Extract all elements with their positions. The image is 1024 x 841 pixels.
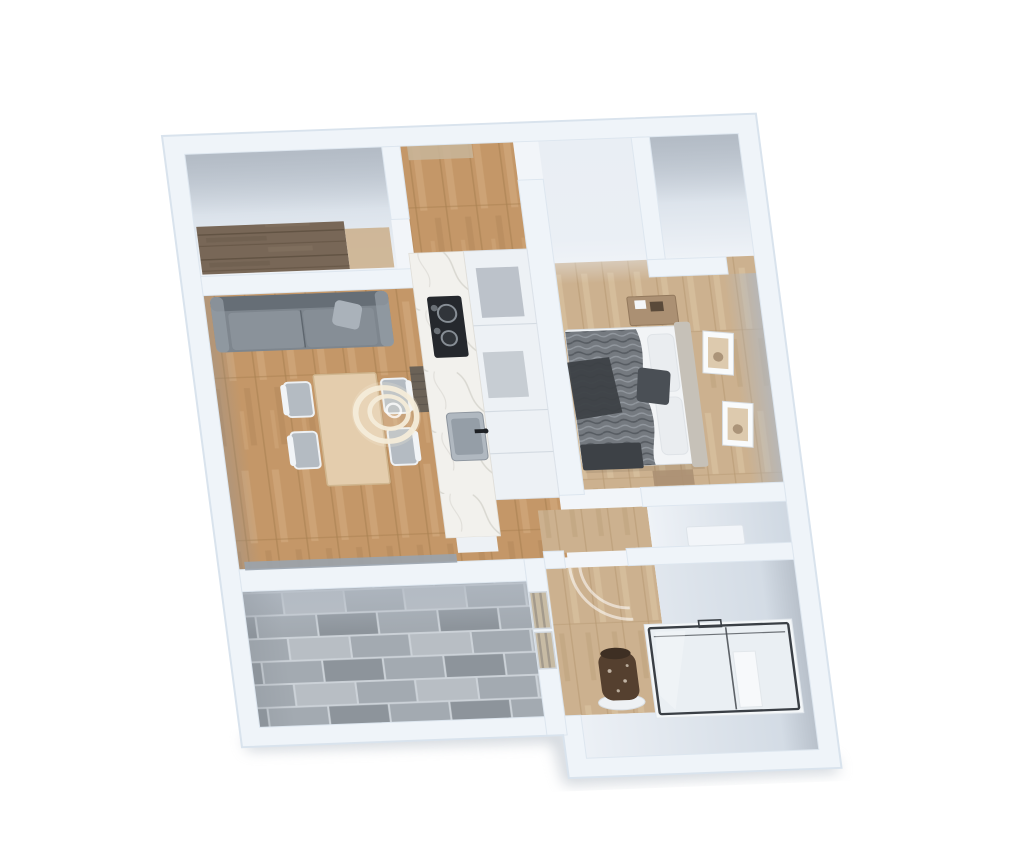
counter-leg: [456, 536, 498, 553]
dining-chair: [286, 432, 321, 469]
radiator-shelf: [686, 525, 745, 546]
wardrobe-dark-wood: [196, 221, 350, 274]
foot-bench: [580, 442, 644, 470]
double-bed: [562, 322, 709, 474]
closet-shelf: [345, 227, 395, 269]
sofa: [210, 291, 395, 353]
room-terrace: [242, 581, 545, 727]
room-walkin-closet: [649, 134, 754, 260]
bedroom-console: [652, 469, 694, 486]
cabinet-panel: [483, 351, 529, 398]
accent-pillow: [636, 367, 670, 405]
glass-shower-cabin: [644, 617, 804, 718]
floorplan-render: [0, 0, 1024, 841]
room-entry-closet: [185, 147, 398, 277]
wall-bathroom-top-west: [543, 551, 565, 569]
wall-bedroom-top: [647, 257, 728, 277]
wall-picture: [703, 331, 734, 375]
wall-picture: [723, 401, 754, 447]
floorplan: [162, 114, 842, 791]
dining-chair: [280, 382, 315, 418]
cabinet-panel: [476, 267, 525, 318]
